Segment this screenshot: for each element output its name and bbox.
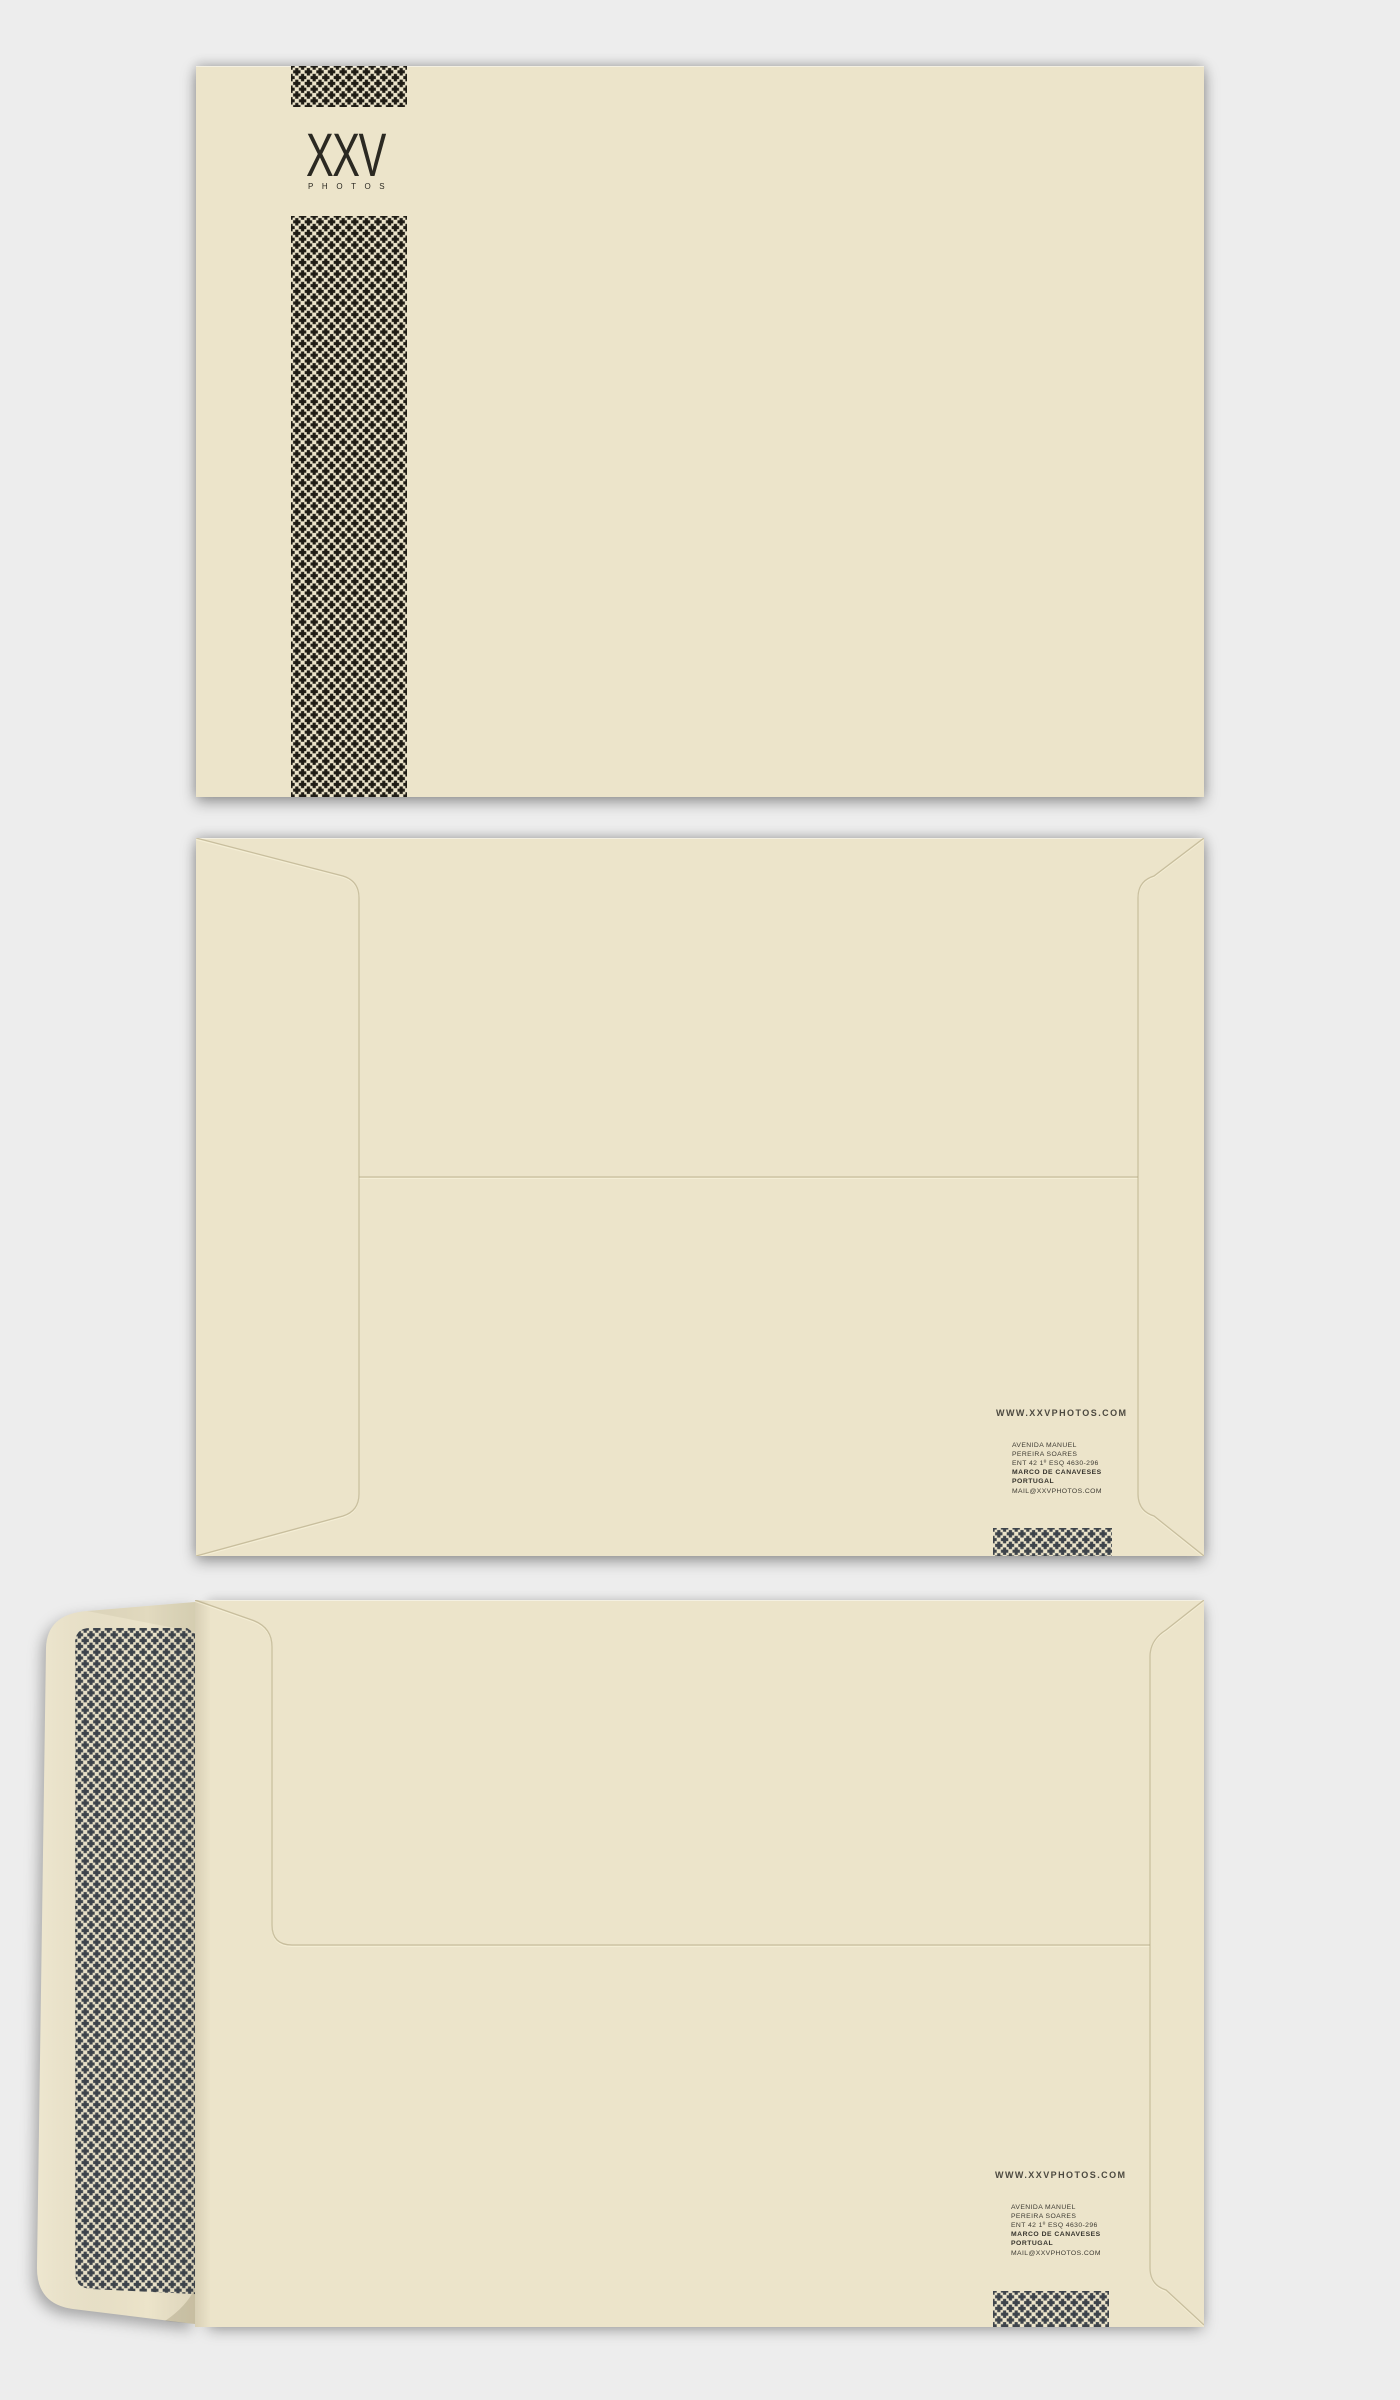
contact-block: WWW.XXVPHOTOS.COM AVENIDA MANUEL PEREIRA… — [996, 1408, 1216, 1495]
halftone-stripe-icon — [291, 216, 407, 797]
halftone-block-small-icon — [993, 1528, 1112, 1556]
address-block: AVENIDA MANUEL PEREIRA SOARES ENT 42 1º … — [1011, 2203, 1215, 2248]
envelope-body: WWW.XXVPHOTOS.COM AVENIDA MANUEL PEREIRA… — [195, 1600, 1204, 2327]
logo-text: XXV — [306, 127, 386, 190]
address-line: PORTUGAL — [1012, 1477, 1216, 1486]
address-line: AVENIDA MANUEL — [1011, 2203, 1215, 2212]
address-block: AVENIDA MANUEL PEREIRA SOARES ENT 42 1º … — [1012, 1441, 1216, 1486]
address-line: ENT 42 1º ESQ 4630-296 — [1011, 2221, 1215, 2230]
email-address: MAIL@XXVPHOTOS.COM — [1012, 1488, 1216, 1495]
envelope-back-flap-open: WWW.XXVPHOTOS.COM AVENIDA MANUEL PEREIRA… — [33, 1600, 1204, 2327]
envelope-front: XXV PHOTOS — [196, 66, 1204, 797]
contact-block: WWW.XXVPHOTOS.COM AVENIDA MANUEL PEREIRA… — [995, 2170, 1215, 2257]
envelope-back-closed: WWW.XXVPHOTOS.COM AVENIDA MANUEL PEREIRA… — [196, 838, 1204, 1556]
address-line: ENT 42 1º ESQ 4630-296 — [1012, 1459, 1216, 1468]
brand-logo-lockup: XXV PHOTOS — [306, 127, 446, 202]
presentation-canvas: XXV PHOTOS WWW.XXVPHOTOS.COM AVENIDA MAN… — [0, 0, 1400, 2400]
address-line: PEREIRA SOARES — [1012, 1450, 1216, 1459]
address-line: PORTUGAL — [1011, 2239, 1215, 2248]
address-line: AVENIDA MANUEL — [1012, 1441, 1216, 1450]
halftone-block-top-icon — [291, 66, 407, 107]
email-address: MAIL@XXVPHOTOS.COM — [1011, 2250, 1215, 2257]
address-line: MARCO DE CANAVESES — [1011, 2230, 1215, 2239]
website-url: WWW.XXVPHOTOS.COM — [995, 2170, 1215, 2180]
halftone-block-small-icon — [993, 2291, 1109, 2327]
brand-logo: XXV PHOTOS — [306, 127, 446, 202]
address-line: MARCO DE CANAVESES — [1012, 1468, 1216, 1477]
address-line: PEREIRA SOARES — [1011, 2212, 1215, 2221]
website-url: WWW.XXVPHOTOS.COM — [996, 1408, 1216, 1418]
logo-subtext: PHOTOS — [308, 182, 393, 191]
